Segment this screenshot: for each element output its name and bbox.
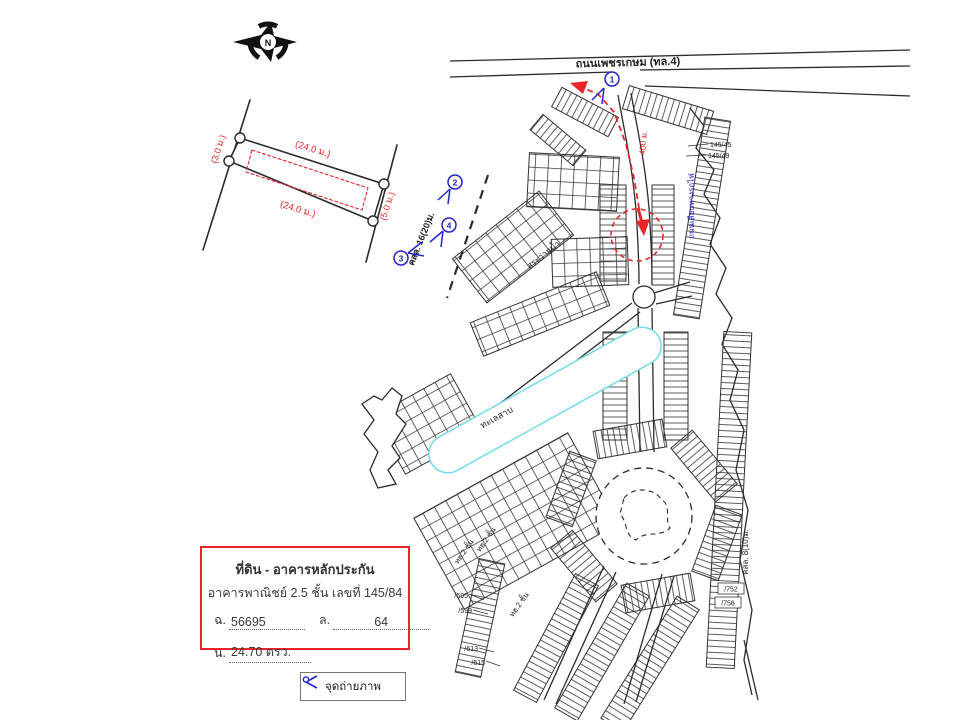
subject-arrowhead — [636, 219, 650, 236]
camera-number-label: 3 — [399, 254, 404, 264]
house-row-label: ทฮ.2 ชั้น — [506, 590, 530, 619]
compass-n-label: N — [265, 38, 272, 48]
collateral-subtitle: อาคารพาณิชย์ 2.5 ชั้น เลขที่ 145/84 — [202, 583, 408, 603]
area-value: 24.70 ตรว. — [229, 642, 311, 663]
highway-line — [640, 66, 910, 70]
legend-photo-point: จุดถ่ายภาพ — [300, 672, 406, 701]
camera-number-label: 1 — [610, 75, 615, 85]
lot-number-label: /613 — [464, 646, 478, 653]
highway-name-label: ถนนเพชรเกษม (ทล.4) — [576, 56, 681, 71]
deed-label: ฉ. — [214, 610, 226, 630]
sketch-bottom-dimension: (24.0 ม.) — [279, 199, 317, 220]
parcel-strip — [664, 332, 688, 440]
lot-number-label: /595 — [454, 593, 468, 600]
land-value: 64 — [333, 615, 429, 630]
north-arrow-icon: N — [233, 22, 297, 62]
garden-dashed-circle — [596, 468, 692, 564]
route-arrowhead — [570, 81, 588, 94]
camera-number-label: 4 — [447, 221, 452, 231]
parcel-strip — [622, 86, 713, 135]
lot-number-label: /752 — [724, 587, 738, 594]
highway-line — [450, 72, 612, 77]
collateral-title: ที่ดิน - อาคารหลักประกัน — [202, 559, 408, 580]
parcel-sketch: (24.0 ม.) (24.0 ม.) (3.0 ม.) (5.0 ม.) — [203, 100, 397, 262]
survey-map-page: N (24.0 ม.) (24.0 ม.) (3.0 ม.) (5.0 ม.) … — [0, 0, 960, 720]
highway-fork-line — [645, 86, 910, 96]
camera-view-cone-icon — [592, 88, 604, 104]
house-ref-label: 145/49 — [708, 153, 730, 160]
camera-point-2: 2 — [438, 175, 462, 204]
collateral-info-box: ที่ดิน - อาคารหลักประกัน อาคารพาณิชย์ 2.… — [200, 546, 410, 650]
lot-number-label: /756 — [721, 601, 735, 608]
sketch-left-road-line — [203, 100, 250, 250]
lot-number-label: /599 — [458, 608, 472, 615]
lot-number-label: /615 — [471, 660, 485, 667]
circular-feature — [596, 468, 692, 564]
camera-point-4: 4 — [430, 218, 456, 247]
land-label: ล. — [319, 610, 330, 630]
route-distance-label: 400 ม. — [637, 130, 649, 155]
road-16-width-label: คสล. 16(20)ม. — [406, 211, 436, 267]
map-drawing: N (24.0 ม.) (24.0 ม.) (3.0 ม.) (5.0 ม.) … — [0, 0, 960, 720]
camera-point-icon — [301, 673, 321, 691]
parcel-strip — [552, 87, 619, 136]
area-label: น. — [214, 643, 226, 663]
house-ref-label: 145/45 — [710, 142, 732, 149]
camera-point-1: 1 — [592, 72, 619, 104]
road-8-width-label: คสล. 8(10)ม. — [741, 529, 750, 575]
side-road-name-label: ถนนเลียบทางรถไฟ — [687, 173, 696, 239]
deed-value: 56695 — [229, 615, 305, 630]
camera-number-label: 2 — [453, 178, 458, 188]
legend-photo-point-label: จุดถ่ายภาพ — [325, 678, 381, 696]
roundabout — [633, 286, 655, 308]
camera-view-cone-icon — [430, 231, 443, 247]
camera-view-cone-icon — [438, 189, 450, 204]
